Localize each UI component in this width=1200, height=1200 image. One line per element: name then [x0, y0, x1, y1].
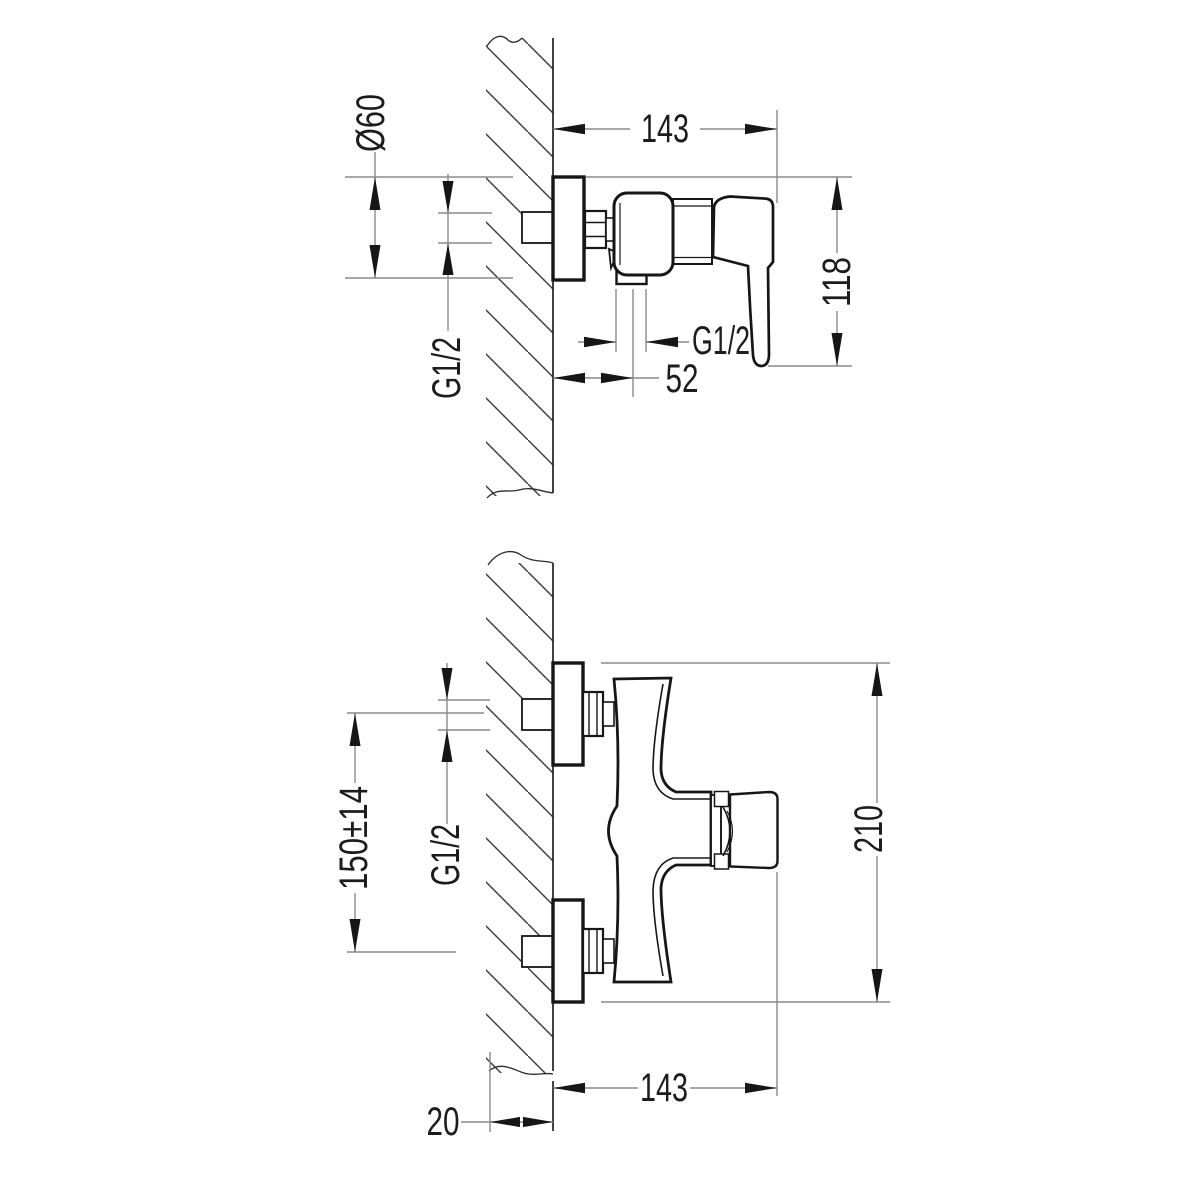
arrowhead [553, 124, 585, 134]
dim-label-width: 143 [640, 1066, 688, 1110]
dim-label-inlet-thread: G1/2 [424, 824, 468, 886]
thread-connector [673, 199, 712, 264]
dim-label-outlet-thread: G1/2 [692, 319, 750, 363]
arrowhead [832, 333, 843, 366]
dim-label-inlet-thread: G1/2 [425, 337, 469, 399]
arrowhead [646, 337, 678, 347]
wall-hatching [486, 563, 553, 1073]
side-view: Ø60 143 118 G1/2 G1/2 52 [345, 36, 859, 498]
arrowhead [872, 663, 883, 696]
arrowhead [443, 181, 454, 213]
arrowhead [553, 1083, 585, 1093]
arrowhead [523, 1117, 553, 1127]
arrowhead [832, 177, 843, 210]
wall-hatching [486, 38, 553, 496]
dim-label-outlet-offset: 52 [666, 357, 699, 401]
arrowhead [872, 969, 883, 1002]
dim-label-flange-diameter: Ø60 [349, 94, 393, 152]
handle-cap [730, 792, 778, 868]
shower-mixer-drawing: Ø60 143 118 G1/2 G1/2 52 [0, 0, 1200, 1200]
hex-nut-top [583, 692, 603, 736]
dim-label-width: 143 [641, 107, 689, 151]
arrowhead [370, 177, 381, 210]
dim-label-height: 210 [847, 805, 891, 853]
front-view: 150±14 G1/2 210 143 20 [332, 552, 891, 1144]
supply-pipe [522, 212, 553, 243]
wall-break-line-top [488, 552, 553, 565]
mixer-body [609, 678, 712, 982]
supply-pipe-top [522, 699, 553, 730]
arrowhead [601, 373, 633, 383]
arrowhead [745, 1083, 777, 1093]
handle-collar-notch-top [715, 792, 729, 807]
connector-neck-bottom [603, 939, 614, 963]
connector-neck-top [603, 702, 614, 726]
hex-nut-bottom [583, 929, 603, 973]
arrowhead [350, 713, 361, 746]
hex-nut [585, 211, 606, 248]
arrowhead [442, 730, 453, 762]
technical-drawing-page: Ø60 143 118 G1/2 G1/2 52 [0, 0, 1200, 1200]
dim-label-wall-thickness: 20 [427, 1100, 460, 1144]
dim-label-inlet-spacing: 150±14 [332, 786, 376, 890]
mounting-flange-top [553, 663, 583, 765]
arrowhead [442, 668, 453, 700]
arrowhead [553, 373, 585, 383]
mixer-body [614, 193, 673, 275]
handle-collar-notch-bottom [715, 854, 729, 869]
arrowhead [443, 243, 454, 275]
arrowhead [350, 919, 361, 952]
supply-pipe-bottom [522, 936, 553, 967]
mounting-flange [553, 177, 584, 280]
arrowhead [745, 124, 777, 134]
dim-label-height: 118 [815, 257, 859, 307]
mounting-flange-bottom [553, 900, 583, 1002]
arrowhead [370, 245, 381, 278]
arrowhead [584, 337, 616, 347]
arrowhead [490, 1117, 520, 1127]
